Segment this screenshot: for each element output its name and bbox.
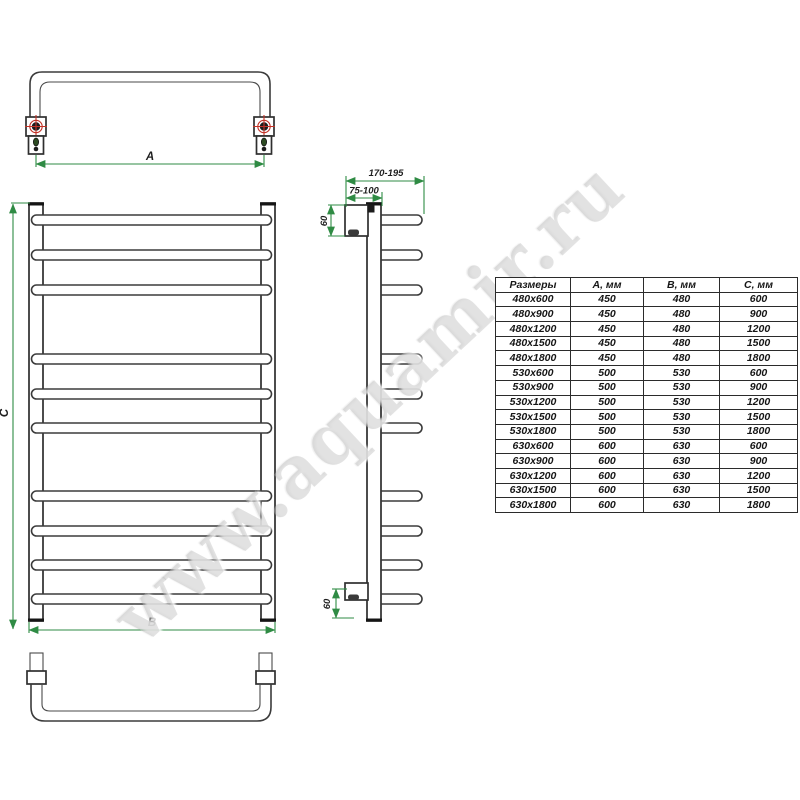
dimension-A-label: A — [145, 151, 154, 163]
table-cell: 1500 — [720, 410, 798, 425]
total-depth-label: 170-195 — [369, 168, 405, 179]
dimension-C: C — [0, 203, 30, 629]
col-header-a: А, мм — [571, 278, 644, 293]
top-view-tube-outer — [30, 72, 270, 117]
table-cell: 900 — [720, 380, 798, 395]
table-cell: 530 — [644, 395, 720, 410]
table-cell: 630x1800 — [496, 498, 571, 513]
side-bottom-bracket — [345, 583, 368, 600]
table-cell: 500 — [571, 395, 644, 410]
bottom-tube-inner — [42, 684, 260, 711]
left-connector-nut — [27, 671, 46, 684]
dimension-A: A — [36, 151, 264, 167]
rung — [32, 560, 272, 570]
front-rungs — [32, 215, 272, 604]
table-cell: 530x900 — [496, 380, 571, 395]
table-cell: 630 — [644, 468, 720, 483]
left-connector-stub — [30, 653, 43, 672]
table-cell: 500 — [571, 424, 644, 439]
table-cell: 480x600 — [496, 292, 571, 307]
table-cell: 530 — [644, 366, 720, 381]
table-cell: 600 — [720, 292, 798, 307]
rung — [32, 354, 272, 364]
table-row: 530x15005005301500 — [496, 410, 798, 425]
right-connector-stub — [259, 653, 272, 672]
table-cell: 500 — [571, 366, 644, 381]
bottom-view — [27, 653, 275, 721]
table-cell: 600 — [571, 468, 644, 483]
dimension-top-bracket-60: 60 — [319, 205, 345, 236]
table-row: 630x18006006301800 — [496, 498, 798, 513]
table-row: 530x18005005301800 — [496, 424, 798, 439]
table-row: 530x900500530900 — [496, 380, 798, 395]
bottom-bracket-size-label: 60 — [322, 598, 333, 609]
table-cell: 500 — [571, 380, 644, 395]
table-cell: 450 — [571, 322, 644, 337]
bracket-foot — [348, 595, 359, 601]
table-cell: 480 — [644, 336, 720, 351]
keyhole-dot — [34, 147, 39, 152]
dimension-C-label: C — [0, 408, 11, 417]
table-cell: 500 — [571, 410, 644, 425]
table-row: 480x600450480600 — [496, 292, 798, 307]
table-cell: 530x1800 — [496, 424, 571, 439]
table-cell: 630x600 — [496, 439, 571, 454]
rung — [32, 250, 272, 260]
table-cell: 1200 — [720, 322, 798, 337]
bracket-foot — [348, 230, 359, 236]
table-cell: 480x1500 — [496, 336, 571, 351]
table-cell: 630 — [644, 439, 720, 454]
table-cell: 600 — [720, 366, 798, 381]
table-cell: 480 — [644, 351, 720, 366]
top-view: A — [25, 72, 275, 167]
technical-drawing-page: A C B — [0, 0, 800, 800]
col-header-sizes: Размеры — [496, 278, 571, 293]
rung — [32, 491, 272, 501]
rung — [32, 423, 272, 433]
keyhole-slot — [261, 138, 266, 146]
table-cell: 600 — [571, 439, 644, 454]
table-cell: 480 — [644, 322, 720, 337]
table-cell: 1200 — [720, 468, 798, 483]
table-cell: 1800 — [720, 424, 798, 439]
top-view-tube-inner — [40, 82, 260, 117]
rung — [32, 215, 272, 225]
top-view-left-bracket — [25, 115, 47, 154]
table-cell: 480 — [644, 292, 720, 307]
table-row: 630x15006006301500 — [496, 483, 798, 498]
table-row: 630x600600630600 — [496, 439, 798, 454]
side-post — [367, 203, 381, 621]
rung — [32, 526, 272, 536]
table-cell: 480x1200 — [496, 322, 571, 337]
table-row: 630x900600630900 — [496, 454, 798, 469]
table-cell: 630x1500 — [496, 483, 571, 498]
rung — [32, 389, 272, 399]
table-row: 480x18004504801800 — [496, 351, 798, 366]
rung — [32, 594, 272, 604]
table-cell: 480 — [644, 307, 720, 322]
table-cell: 530x600 — [496, 366, 571, 381]
table-cell: 480x900 — [496, 307, 571, 322]
table-cell: 600 — [720, 439, 798, 454]
table-cell: 530 — [644, 380, 720, 395]
col-header-c: С, мм — [720, 278, 798, 293]
top-view-right-bracket — [253, 115, 275, 154]
dimension-B-label: B — [148, 617, 156, 629]
table-cell: 1500 — [720, 336, 798, 351]
table-row: 530x600500530600 — [496, 366, 798, 381]
table-cell: 530x1200 — [496, 395, 571, 410]
rung — [32, 285, 272, 295]
table-cell: 1800 — [720, 498, 798, 513]
col-header-b: В, мм — [644, 278, 720, 293]
table-cell: 900 — [720, 307, 798, 322]
table-header-row: Размеры А, мм В, мм С, мм — [496, 278, 798, 293]
table-cell: 630 — [644, 454, 720, 469]
keyhole-slot — [33, 138, 38, 146]
table-row: 630x12006006301200 — [496, 468, 798, 483]
table-cell: 900 — [720, 454, 798, 469]
keyhole-dot — [262, 147, 267, 152]
front-view: C B — [0, 203, 276, 633]
table-cell: 1200 — [720, 395, 798, 410]
table-cell: 630x900 — [496, 454, 571, 469]
size-table: Размеры А, мм В, мм С, мм 480x6004504806… — [495, 277, 798, 513]
table-cell: 450 — [571, 351, 644, 366]
top-bracket-size-label: 60 — [319, 215, 330, 226]
left-post — [29, 203, 43, 621]
right-connector-nut — [256, 671, 275, 684]
table-cell: 450 — [571, 292, 644, 307]
bracket-offset-label: 75-100 — [349, 186, 379, 197]
table-cell: 1800 — [720, 351, 798, 366]
table-cell: 600 — [571, 498, 644, 513]
table-row: 530x12005005301200 — [496, 395, 798, 410]
dimension-B: B — [29, 617, 275, 633]
right-post — [261, 203, 275, 621]
table-cell: 450 — [571, 336, 644, 351]
table-cell: 630x1200 — [496, 468, 571, 483]
table-row: 480x12004504801200 — [496, 322, 798, 337]
table-cell: 530x1500 — [496, 410, 571, 425]
table-cell: 600 — [571, 483, 644, 498]
table-cell: 530 — [644, 410, 720, 425]
table-cell: 630 — [644, 483, 720, 498]
side-view: 170-195 75-100 60 60 — [319, 168, 424, 621]
table-cell: 450 — [571, 307, 644, 322]
table-cell: 530 — [644, 424, 720, 439]
table-cell: 480x1800 — [496, 351, 571, 366]
table-cell: 1500 — [720, 483, 798, 498]
pipe-joint — [368, 205, 375, 213]
table-row: 480x900450480900 — [496, 307, 798, 322]
bottom-tube-outer — [31, 684, 271, 721]
table-cell: 600 — [571, 454, 644, 469]
table-row: 480x15004504801500 — [496, 336, 798, 351]
table-cell: 630 — [644, 498, 720, 513]
